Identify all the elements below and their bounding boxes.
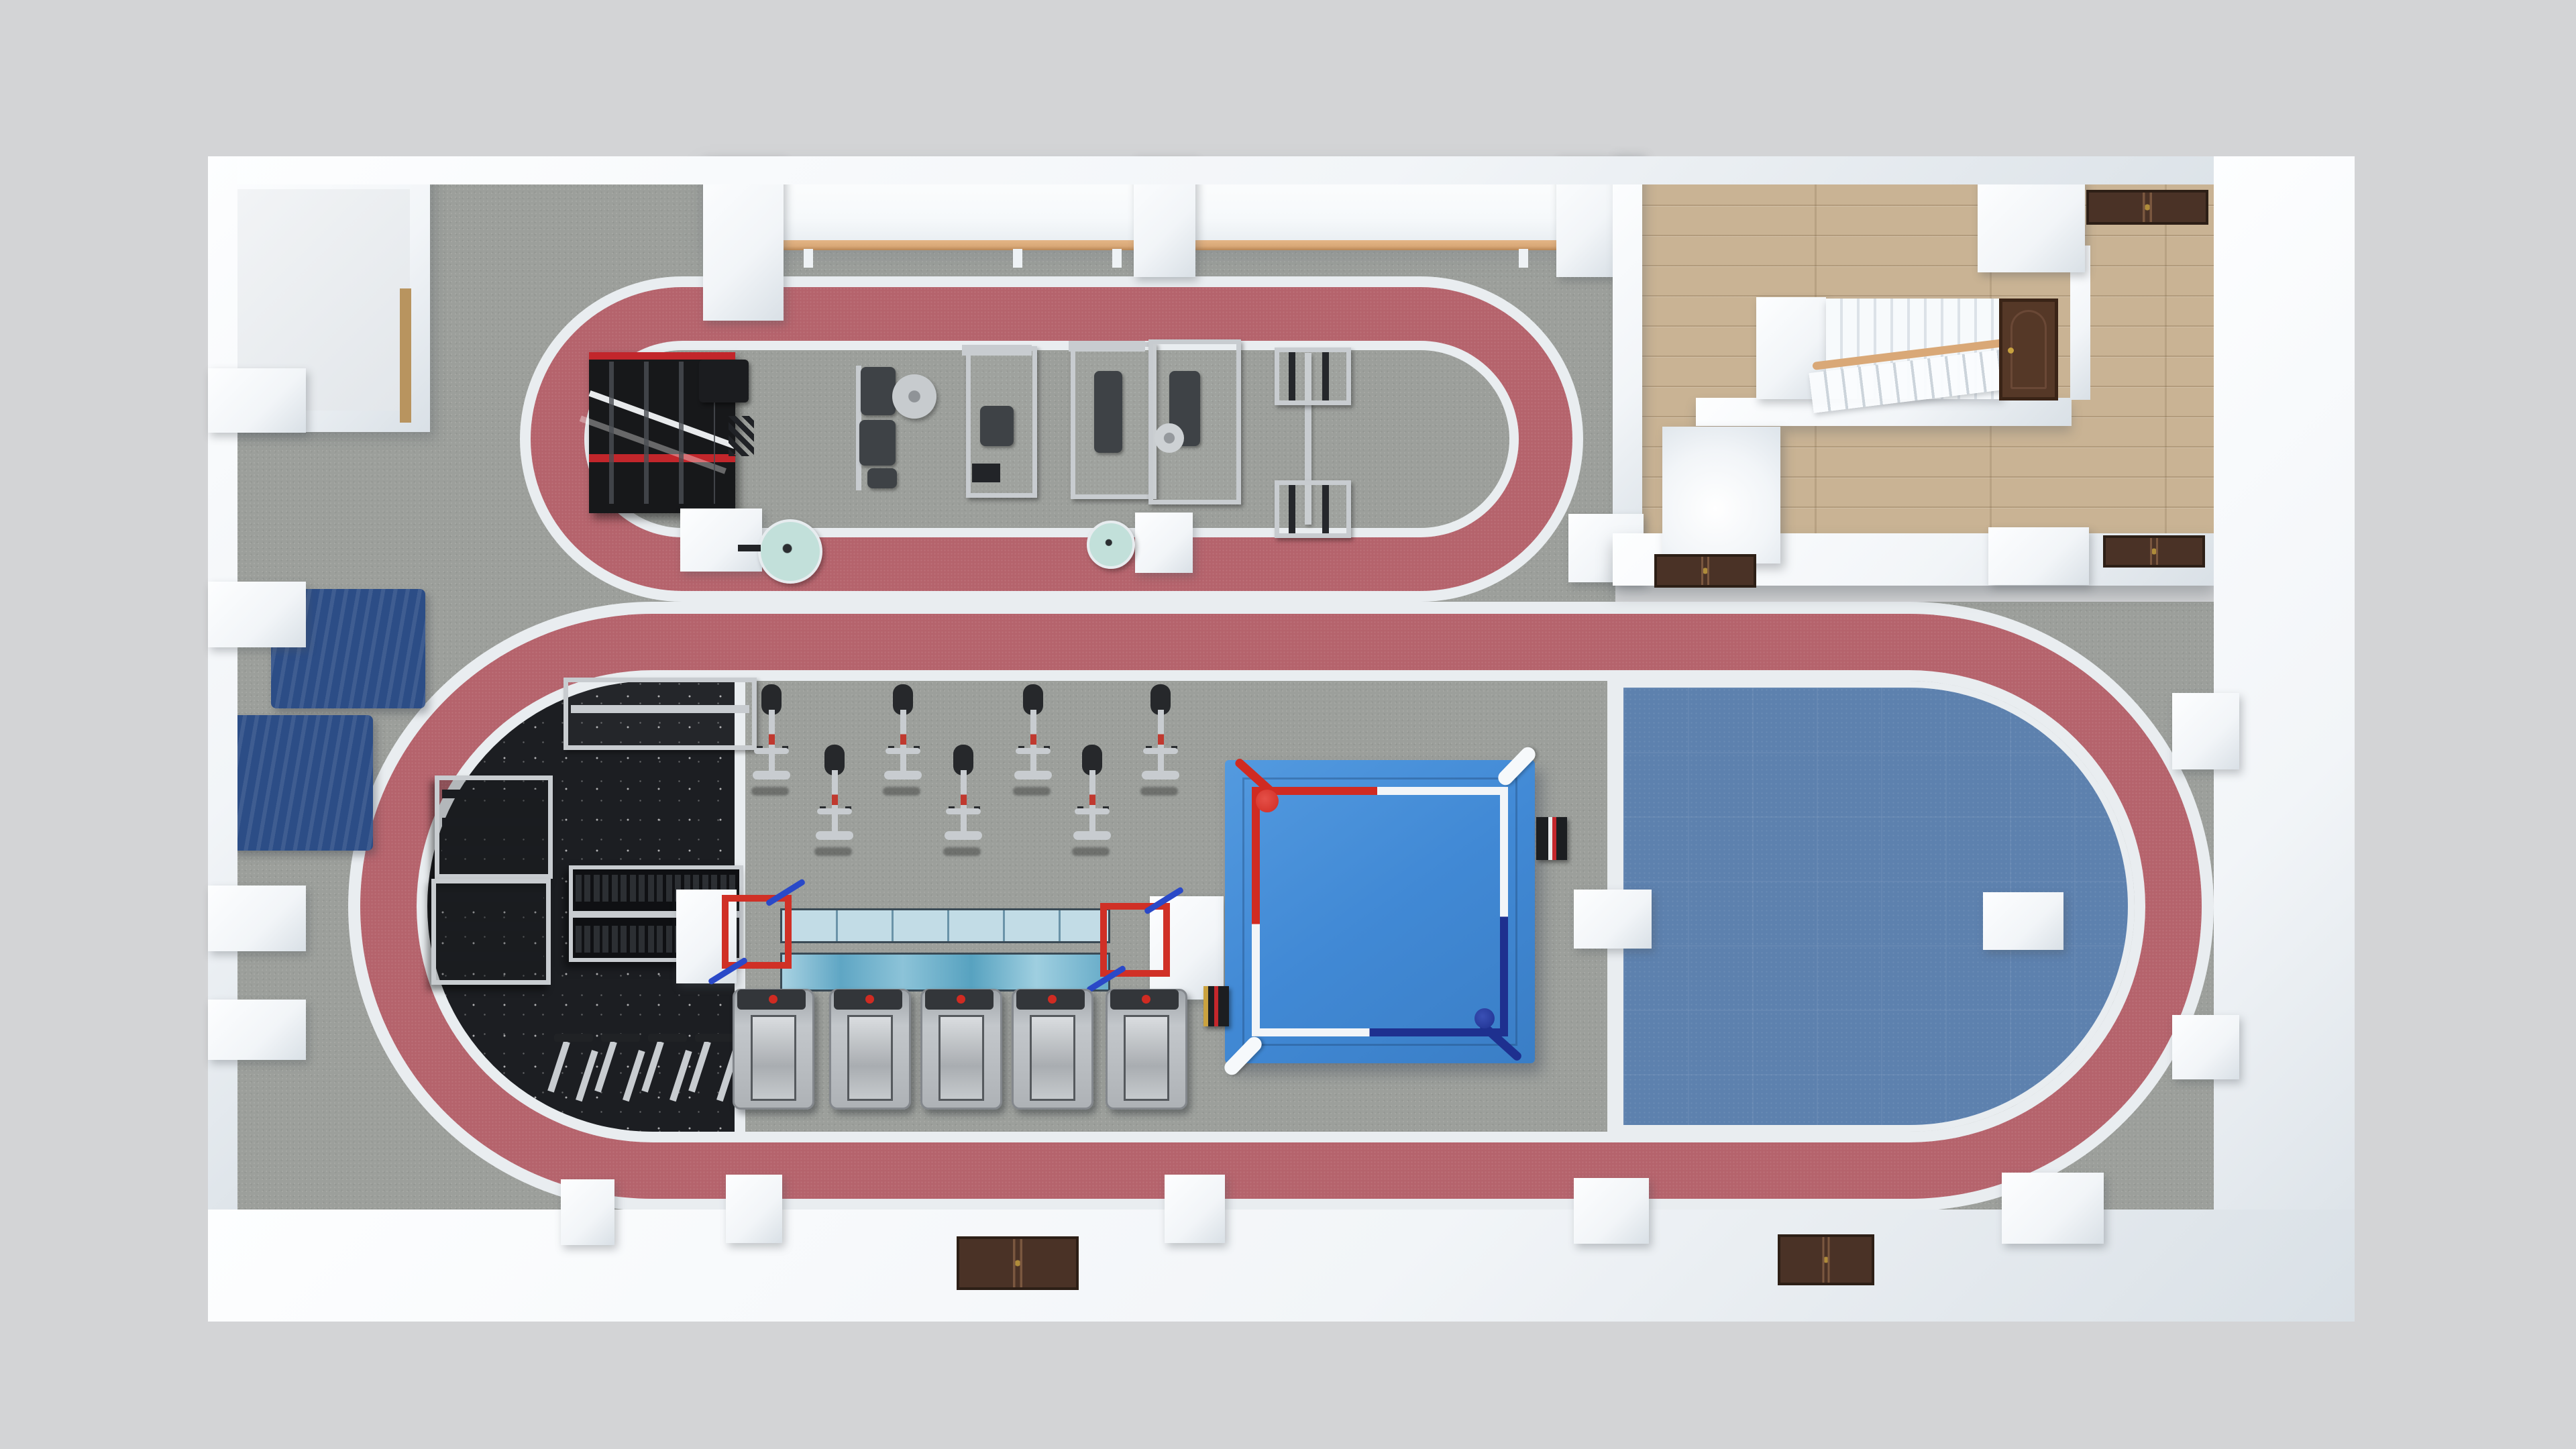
weight-stack: [972, 464, 1000, 482]
machine-crossbar: [962, 345, 1032, 356]
column-blue-zone: [1574, 890, 1652, 949]
rack-shelf-bar: [571, 705, 749, 713]
shoulder-press-machine: [1071, 342, 1157, 499]
rack-bar: [442, 790, 545, 798]
spin-bike: [943, 745, 983, 845]
rack-cable-arm: [699, 360, 749, 402]
pedestal-fan: [1087, 521, 1135, 569]
wall-pillar: [1165, 1175, 1225, 1243]
bike-pedals: [900, 742, 906, 748]
rack-bar: [439, 922, 543, 931]
wall-pillar: [2172, 1015, 2239, 1079]
wall-pillar: [208, 885, 306, 951]
treadmill: [733, 989, 814, 1110]
north-wall: [208, 156, 2355, 184]
runway-lane-tiles: [780, 908, 1110, 943]
spin-bike: [751, 684, 792, 785]
office-door: [400, 288, 411, 423]
wall-pillar: [208, 368, 306, 433]
barre-bracket: [1112, 249, 1122, 268]
gym-floorplan-render: Top-down 3D architectural render of a fi…: [0, 0, 2576, 1449]
bike-pedals: [1158, 742, 1164, 748]
treadmill: [829, 989, 911, 1110]
fan-stem: [738, 545, 761, 551]
barbell-stand: [551, 1034, 596, 1097]
wall-pillar: [1574, 1178, 1649, 1244]
lat-pulldown-machine: [966, 346, 1037, 498]
door-handle: [2008, 347, 2014, 354]
boxing-ring: [1225, 760, 1535, 1063]
barre-bracket: [804, 249, 813, 268]
ring-corner-disc-red: [1256, 790, 1279, 812]
spin-bike: [1140, 684, 1181, 785]
crash-mat: [231, 715, 373, 851]
rack-bar: [439, 893, 543, 902]
wall-pillar: [2002, 1173, 2104, 1244]
bench-leg-pad: [867, 468, 897, 488]
machine-crossbar: [1069, 341, 1145, 352]
stop-button: [769, 995, 777, 1004]
bike-pedals: [769, 742, 775, 748]
barbell-stand: [598, 1034, 643, 1097]
runway-gate: [1100, 903, 1170, 977]
leg-extension-machine: [1148, 339, 1241, 504]
weight-plate: [892, 374, 936, 419]
machine-bench-pad: [1094, 371, 1122, 453]
ring-rope-top: [1252, 787, 1508, 795]
lobby-wall-pillar: [1988, 527, 2089, 585]
cable-end-station: [1275, 480, 1351, 538]
wall-pillar: [208, 1000, 306, 1060]
treadmill: [1012, 989, 1093, 1110]
lobby-north-partition: [1978, 178, 2085, 272]
runway-gate: [722, 895, 792, 969]
ring-rope-right: [1500, 787, 1508, 1036]
plate-storage-rack: [431, 879, 551, 985]
wall-pillar: [726, 1175, 782, 1243]
sled-runway: [780, 907, 1110, 994]
barbell-stand: [645, 1034, 690, 1097]
scene-description: Top-down 3D architectural render of a fi…: [0, 0, 1, 1]
wall-pillar: [208, 582, 306, 647]
treadmill: [920, 989, 1002, 1110]
west-wall: [208, 156, 237, 1322]
spin-bike: [883, 684, 923, 785]
spin-bike: [1013, 684, 1053, 785]
wall-pillar: [2172, 693, 2239, 769]
pedestal-fan: [758, 519, 822, 584]
door-panel: [2010, 310, 2047, 389]
barre-bracket: [1519, 249, 1528, 268]
column-upper-right: [1135, 513, 1193, 573]
spin-bike: [1072, 745, 1112, 845]
ring-side-step: [1203, 986, 1229, 1026]
rack-bar: [442, 818, 545, 826]
door-mat: [957, 1236, 1079, 1290]
column-upper-left: [680, 508, 762, 572]
stop-button: [1142, 995, 1150, 1004]
treadmill: [1106, 989, 1187, 1110]
cable-crossover-station: [1272, 347, 1344, 530]
bike-pedals: [1089, 802, 1095, 808]
door-mat: [1778, 1234, 1874, 1285]
ring-rope-bottom: [1252, 1028, 1508, 1036]
door-mat: [1654, 554, 1756, 588]
plate-storage-rack: [435, 775, 553, 879]
cable-end-station: [1275, 347, 1351, 405]
rack-bar: [439, 952, 543, 961]
door-mat: [2086, 190, 2208, 225]
machine-wheel: [1155, 423, 1184, 453]
reception-counter: [1662, 427, 1780, 563]
stop-button: [865, 995, 874, 1004]
bench-back-pad: [861, 367, 896, 415]
bike-pedals: [1030, 742, 1036, 748]
curl-bar: [729, 416, 754, 456]
stop-button: [1048, 995, 1057, 1004]
barbell-stand: [692, 1034, 737, 1097]
ring-corner-disc-navy: [1474, 1008, 1495, 1028]
wall-pillar: [561, 1179, 614, 1245]
bike-pedals: [832, 802, 838, 808]
ring-apron-line: [1242, 777, 1517, 1046]
runway-lane-turf: [780, 953, 1110, 991]
spin-bike: [814, 745, 855, 845]
barre-bracket: [1013, 249, 1022, 268]
bench-seat-pad: [859, 420, 896, 466]
machine-seat: [980, 406, 1014, 446]
storage-rack: [563, 678, 757, 750]
door-mat: [2103, 535, 2205, 568]
ring-side-step: [1536, 817, 1567, 860]
bike-pedals: [961, 802, 967, 808]
ring-rope-left: [1252, 787, 1260, 1036]
stairwell-door: [1999, 299, 2058, 400]
rack-bar: [442, 846, 545, 855]
stop-button: [957, 995, 965, 1004]
column-blue-zone: [1983, 892, 2063, 950]
